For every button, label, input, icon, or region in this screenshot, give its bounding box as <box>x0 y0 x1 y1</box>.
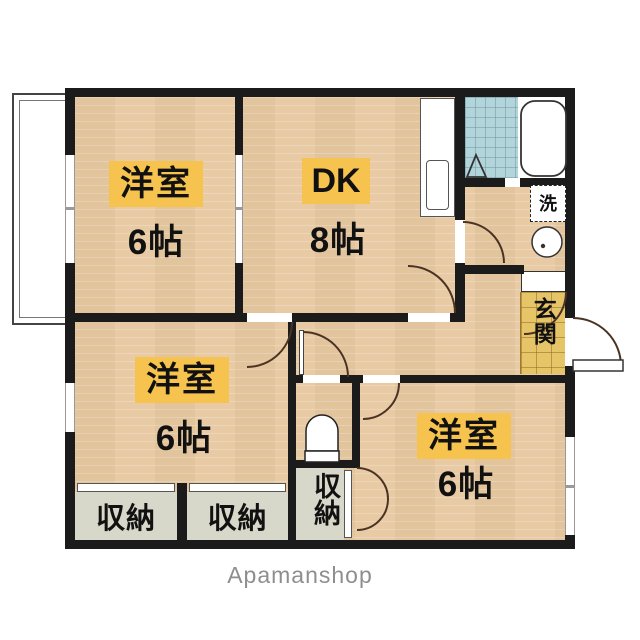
floor-plan: 洋室 6帖 DK 8帖 洋室 6帖 洋室 6帖 洗 玄関 収納 収納 収納 Ap… <box>0 0 640 640</box>
front-door-leaf <box>573 360 623 371</box>
wall-left-2 <box>65 263 75 383</box>
window-balcony-pane2 <box>65 210 75 263</box>
wall-se-left <box>352 383 360 468</box>
window-se-pane2 <box>565 488 575 535</box>
wall-sw-right <box>288 322 296 540</box>
closet-sw-right-label: 収納 <box>189 498 286 540</box>
room-se-name: 洋室 <box>417 413 511 459</box>
bathroom-floor <box>465 97 518 178</box>
wall-lower-h-1 <box>296 375 303 383</box>
window-balcony-pane1 <box>65 155 75 207</box>
toilet-door-leaf <box>299 330 304 375</box>
shoe-cabinet <box>521 271 566 292</box>
wall-wash-bottom <box>460 265 524 274</box>
wall-mid-h-2 <box>292 313 408 322</box>
watermark: Apamanshop <box>170 562 430 589</box>
laundry-pan: 洗 <box>530 185 566 222</box>
room-se-size: 6帖 <box>422 466 510 504</box>
wall-lower-h-3 <box>400 375 575 383</box>
doorway-toilet <box>303 375 340 383</box>
wall-lower-h-2 <box>340 375 363 383</box>
wall-bottom <box>65 540 575 549</box>
wall-toilet-closet <box>296 460 352 468</box>
window-sw <box>65 383 75 432</box>
room-sw-size: 6帖 <box>140 420 228 458</box>
wall-bath-bottom-1 <box>460 178 505 187</box>
doorway-entrance <box>565 318 575 366</box>
doorway-washroom <box>455 220 465 263</box>
room-nw-size: 6帖 <box>112 224 200 262</box>
wall-dk-wash-1 <box>455 88 465 220</box>
wall-top <box>65 88 575 97</box>
closet-center-door <box>344 470 352 538</box>
room-nw-name: 洋室 <box>109 161 203 207</box>
balcony-inner-line <box>19 100 70 318</box>
sliding-door-nw-dk-pane2 <box>235 210 243 263</box>
bathtub-area-floor <box>518 97 565 178</box>
wall-right-1 <box>565 88 575 318</box>
wall-nw-dk-1 <box>235 88 243 155</box>
doorway-se <box>363 375 400 383</box>
wall-closet-divider <box>177 483 187 540</box>
closet-sw-left-label: 収納 <box>77 498 175 540</box>
room-dk-size: 8帖 <box>294 222 382 260</box>
window-se-pane1 <box>565 437 575 485</box>
entrance-label: 玄関 <box>530 297 555 367</box>
room-sw-name: 洋室 <box>135 357 229 403</box>
kitchen-sink <box>426 160 449 210</box>
wall-right-3 <box>565 535 575 549</box>
wall-left-1 <box>65 88 75 155</box>
closet-sw-left-door <box>77 483 175 492</box>
room-dk-name: DK <box>302 158 370 204</box>
door-arc-front-door <box>573 318 621 366</box>
doorway-bathroom <box>505 178 520 187</box>
doorway-dk-sw <box>247 313 292 322</box>
wall-left-3 <box>65 432 75 549</box>
closet-sw-right-door <box>189 483 286 492</box>
doorway-dk-hall <box>408 313 450 322</box>
wall-mid-h-1 <box>65 313 247 322</box>
closet-center-label: 収納 <box>306 472 345 538</box>
sliding-door-nw-dk-pane1 <box>235 155 243 207</box>
